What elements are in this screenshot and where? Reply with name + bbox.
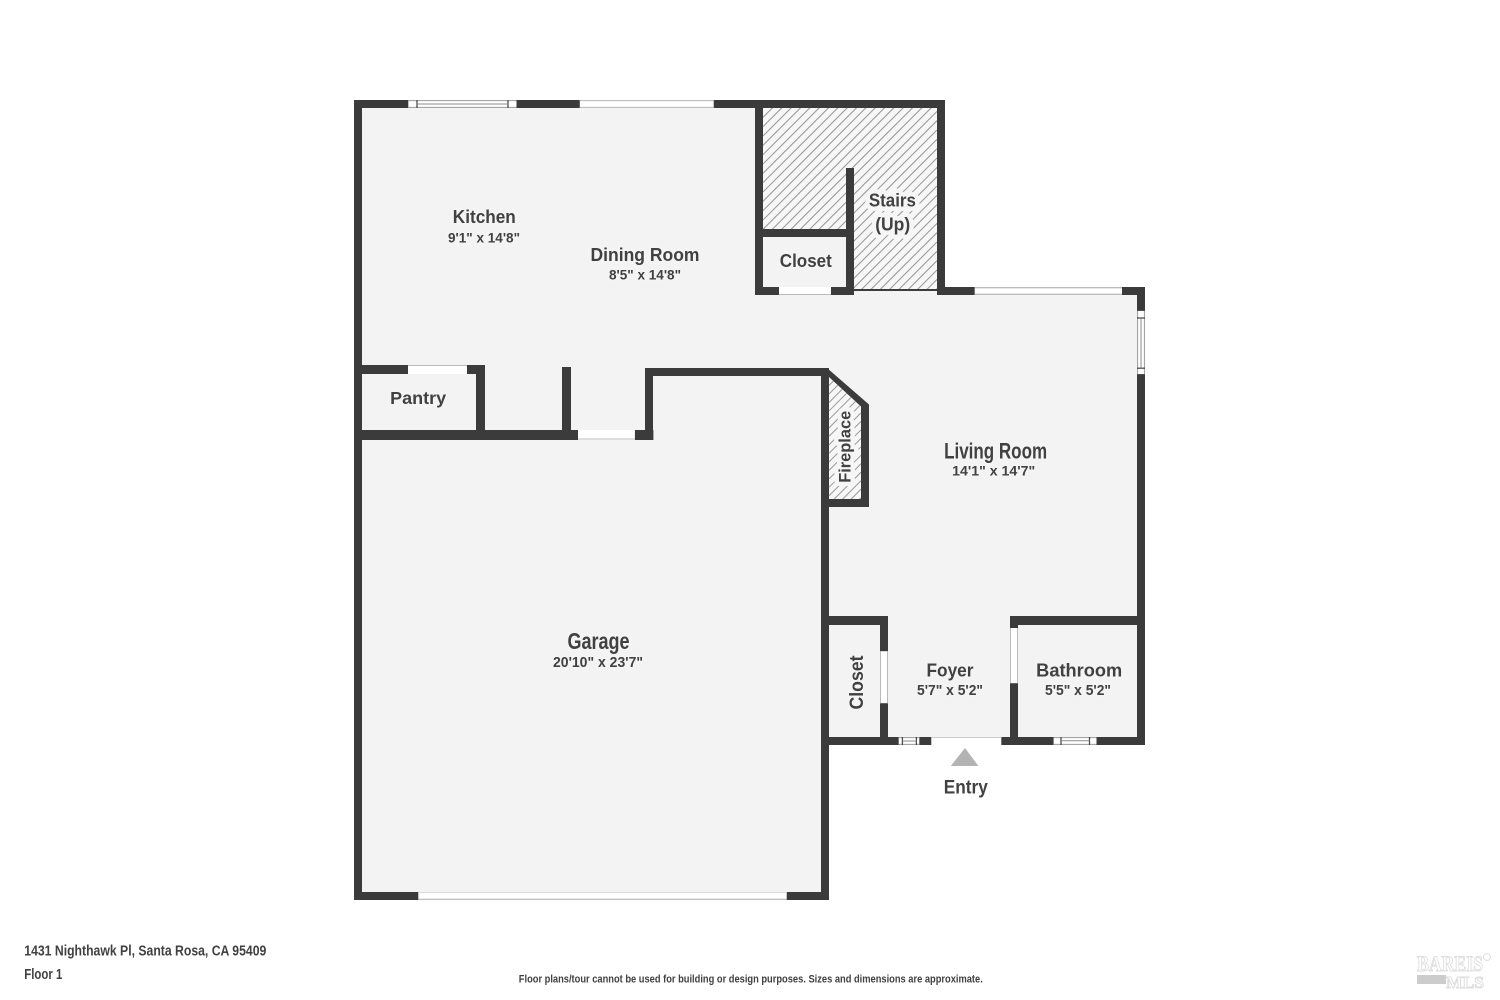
- svg-text:Living Room: Living Room: [944, 438, 1047, 463]
- svg-text:Floor 1: Floor 1: [24, 967, 62, 983]
- svg-text:Stairs: Stairs: [869, 191, 916, 211]
- svg-text:Fireplace: Fireplace: [836, 411, 855, 483]
- svg-text:Foyer: Foyer: [927, 660, 974, 680]
- svg-text:1431 Nighthawk Pl, Santa Rosa,: 1431 Nighthawk Pl, Santa Rosa, CA 95409: [24, 943, 266, 959]
- svg-text:MLS: MLS: [1446, 973, 1484, 992]
- svg-text:5'5" x 5'2": 5'5" x 5'2": [1045, 683, 1111, 699]
- svg-text:14'1" x 14'7": 14'1" x 14'7": [952, 463, 1035, 479]
- svg-text:Closet: Closet: [847, 655, 868, 710]
- svg-text:Garage: Garage: [568, 628, 630, 654]
- svg-text:8'5" x 14'8": 8'5" x 14'8": [609, 266, 681, 282]
- svg-text:Bathroom: Bathroom: [1036, 660, 1122, 680]
- svg-text:(Up): (Up): [875, 215, 910, 235]
- svg-text:Entry: Entry: [944, 778, 988, 799]
- svg-text:Dining Room: Dining Room: [591, 245, 700, 265]
- svg-text:9'1" x 14'8": 9'1" x 14'8": [448, 230, 520, 246]
- svg-text:Pantry: Pantry: [390, 388, 446, 408]
- svg-text:20'10" x 23'7": 20'10" x 23'7": [553, 654, 643, 671]
- svg-text:Floor plans/tour cannot be use: Floor plans/tour cannot be used for buil…: [519, 974, 983, 986]
- svg-text:Kitchen: Kitchen: [453, 207, 516, 227]
- svg-text:5'7" x 5'2": 5'7" x 5'2": [917, 683, 983, 699]
- svg-text:Closet: Closet: [780, 251, 832, 271]
